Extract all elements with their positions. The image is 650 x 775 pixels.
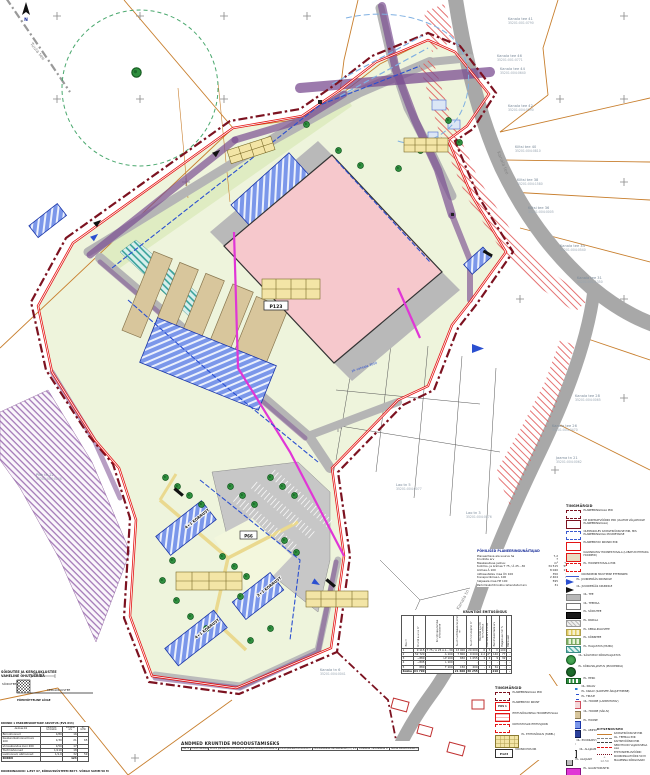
legend-item: KRUNDIPIIRI MUUTMISE ETTEPANEK bbox=[566, 574, 650, 578]
tri-black-swatch bbox=[566, 587, 574, 593]
legend-item-label: PLANEERITAV KRUNT bbox=[513, 702, 540, 705]
parking-table-block: KRUNDI 1 PARKIMISKOHTADE ARVUTUS (EVS 84… bbox=[1, 722, 89, 762]
section-right-label: KERGLIIKLUSTEE bbox=[47, 688, 70, 692]
legend-item: DP KONTAKTVÖÖNDI PIIR (ULATUB VÄLJAPOOLE… bbox=[566, 520, 650, 529]
data-table: Asutuse liikparkimis- normatiivkohtade a… bbox=[1, 726, 89, 762]
pos-label-p123: P123 bbox=[270, 304, 283, 310]
legend-item-label: PL. TRUUP bbox=[582, 696, 595, 699]
legend-item: OL. HOONE (LAMMUTATAV) bbox=[566, 701, 650, 709]
box-magenta-swatch bbox=[566, 768, 581, 775]
tree2-swatch bbox=[566, 667, 576, 677]
tree-swatch bbox=[566, 655, 576, 665]
parcel-label: Kanala tee 4135201:001:0790 bbox=[508, 17, 534, 25]
legend-item: OL. TEE bbox=[566, 594, 650, 601]
legend-item-label: PL. GAASITORUSTIK bbox=[584, 768, 610, 771]
parcel-label: Kanala tee 4235201:004:0690 bbox=[508, 104, 534, 112]
line-blue-swatch bbox=[566, 576, 579, 577]
hedge-swatch bbox=[566, 678, 581, 684]
table-column-header: Suurim brutopind m² bbox=[466, 615, 478, 648]
data-table: Pos nrKrundi suurus m²Krundi kasutamise … bbox=[401, 615, 512, 674]
legend-item-label: KOHUSTUSLIK EHITUSJOON bbox=[513, 724, 548, 727]
legend-item: 12.50MAAPINNA KÕRGUSARV bbox=[597, 760, 650, 763]
parcel-label: Kanala tee 4635201:001:0771 bbox=[497, 54, 523, 62]
legend-item-label: PL. PARKLA bbox=[584, 620, 599, 623]
parcel-label: Kanala tee 2635201:004:0470 bbox=[552, 424, 578, 432]
build-rights-title: KRUNTIDE EHITUSÕIGUS bbox=[401, 610, 569, 614]
legend-item: PLANEERINGUALA PIIR bbox=[495, 692, 575, 701]
box-darkred-swatch bbox=[495, 692, 510, 701]
parking-title: KRUNDI 1 PARKIMISKOHTADE ARVUTUS (EVS 84… bbox=[1, 722, 89, 725]
legend-item-label: OL. TEE bbox=[584, 594, 594, 597]
legend-item-label: KRUNDI POS NR bbox=[516, 749, 537, 752]
legend-item-label: PL. EHITUSÕIGUS (TABEL) bbox=[522, 734, 555, 737]
legend-item: KOHUSTUSLIK EHITUSJOON bbox=[495, 724, 575, 733]
legend-item-label: OL. SÄILITATAV KÕRGHALJASTUS bbox=[579, 655, 621, 658]
pos-label-p66: P66 bbox=[244, 534, 253, 539]
table-total-row: Kokku64 79021 60030 255210- bbox=[402, 669, 512, 673]
ln-reddash-swatch bbox=[597, 747, 612, 748]
legend-item: PL. EHITUSÕIGUS (TABEL) bbox=[495, 734, 575, 747]
legend-item-label: OL. TEEMAA bbox=[584, 603, 600, 606]
line-legend-title: KITSENDUSED bbox=[597, 727, 650, 731]
legend-item-label: PL. KÕNNITEE bbox=[584, 637, 602, 640]
legend-item-label: PLANEERINGUALA PIIR bbox=[513, 692, 542, 695]
legend-item: PLANEERITAV KRUNDI PIIR bbox=[566, 542, 650, 551]
section-dim: min 2,25 bbox=[33, 672, 45, 676]
legend-item-label: PL. KERGLIIKLUSTEE bbox=[584, 629, 610, 632]
legend-item: PL. HALJASTUS (MURU) bbox=[566, 646, 650, 653]
section-diagram: SÕIDUTEE min 2,25 KERGLIIKLUSTEE PÕHIMÕT… bbox=[1, 671, 111, 715]
data-table: Pos nrKrundi aadressKrundi planeeritud s… bbox=[181, 747, 419, 752]
table-column-header: Senise katastriüksuse nr bbox=[390, 747, 419, 751]
indicator-row: Parkimiskohti kokku lahendatud arv31 bbox=[477, 584, 567, 588]
legend-item: PL. KERGLIIKLUSTEE bbox=[566, 629, 650, 636]
legend-item: P123KRUNDI POS NR bbox=[495, 749, 575, 758]
legend-item-label: KAVANDATAV HOONESTUSALA (LUBATUD EHITADA… bbox=[584, 552, 650, 558]
table-column-header: Krundi planeeritud suurus m² bbox=[278, 747, 312, 751]
legend-item: PLANEERINGUALA PIIR bbox=[566, 510, 650, 519]
legend-item-label: PL. KRAAV (SADEVEE ÄRAJUHTIMINE) bbox=[582, 691, 630, 694]
legend-item-label: PL. JUURDEPÄÄS KRUNDILE bbox=[577, 579, 612, 582]
legend-item: POS 1PLANEERITAV KRUNT bbox=[495, 702, 575, 711]
box-red-tan-swatch bbox=[566, 553, 581, 562]
legend-item-label: PL. HOONESTUSALA PIIR bbox=[584, 563, 616, 566]
plan-indicators-block: PÕHILISED PLANEERINGUNÄITAJAD Planeerita… bbox=[477, 549, 567, 587]
legend-item: PL. HEKK bbox=[566, 678, 650, 684]
legend-title: TINGMÄRGID bbox=[566, 504, 650, 508]
legend-item: KAVANDATAV HOONESTUSALA (LUBATUD EHITADA… bbox=[566, 552, 650, 561]
table-column-header: Liidetakse / lahutatakse m² bbox=[358, 747, 390, 751]
legend-item: PL. JUURDEPÄÄS KRUNDILE bbox=[566, 579, 650, 585]
legend2-title: TINGMÄRGID bbox=[495, 686, 575, 690]
legend-item: PL. HOONESTUSALA PIIR bbox=[566, 563, 650, 572]
box-note-swatch bbox=[495, 735, 519, 748]
legend-item: PL. KÕNNITEE bbox=[566, 637, 650, 644]
legend-item: OL. HOONE (SÄILIV) bbox=[566, 711, 650, 719]
legend-item-label: PLANEERITAV KRUNDI PIIR bbox=[584, 542, 618, 545]
bar-black-swatch bbox=[566, 612, 581, 619]
legend-item-label: PLANEERINGUALA PIIR bbox=[584, 510, 613, 513]
formation-title: ANDMED KRUNTIDE MOODUSTAMISEKS bbox=[181, 741, 443, 746]
legend-item-label: OLEMASOLEV KATASTRIÜKSUSE PIIR, MIS PLAN… bbox=[584, 531, 650, 537]
legend-item: OL. SÄILITATAV KÕRGHALJASTUS bbox=[566, 655, 650, 665]
legend-item-label: DP KONTAKTVÖÖNDI PIIR (ULATUB VÄLJAPOOLE… bbox=[584, 520, 650, 526]
bar-gdot-swatch bbox=[566, 638, 581, 645]
legend-item-label: PL. HEKK bbox=[584, 678, 596, 681]
legend-item: OLEMASOLEV KATASTRIÜKSUSE PIIR, MIS PLAN… bbox=[566, 531, 650, 540]
section-left-label: SÕIDUTEE bbox=[2, 681, 16, 686]
table-total-row: KOKKU124 bbox=[2, 757, 89, 761]
section-block: SÕIDUTEE JA KERGLIIKLUSTEE VAHELINE OHUT… bbox=[1, 671, 113, 679]
legend-item-label: PL. HOONE bbox=[584, 720, 598, 723]
box-red-swatch bbox=[566, 542, 581, 551]
box-posnr-swatch: P123 bbox=[495, 749, 513, 758]
box-darkred2-swatch bbox=[566, 520, 581, 529]
footer-note: KOORDINAADID: L-EST 97, KÕRGUSSÜSTEEM BK… bbox=[1, 769, 311, 773]
indicators-title: PÕHILISED PLANEERINGUNÄITAJAD bbox=[477, 549, 567, 553]
parcel-label: Kanala tee 3435201:004:0540 bbox=[560, 244, 586, 252]
legend-secondary: TINGMÄRGID PLANEERINGUALA PIIRPOS 1PLANE… bbox=[495, 686, 575, 760]
parcel-label: Kanala tee 4435201:004:0640 bbox=[500, 67, 526, 75]
box-grey-sm-swatch bbox=[566, 759, 573, 766]
parcel-label: Kanala tee 2835201:004:0065 bbox=[575, 394, 601, 402]
north-label: N bbox=[24, 17, 28, 23]
box-red-swatch: POS 1 bbox=[495, 702, 510, 711]
legend-item-label: OL. HOONE (LAMMUTATAV) bbox=[584, 701, 619, 704]
legend-item-label: EHITUSÕIGUSEGA HOONESTUSALA bbox=[513, 713, 559, 716]
legend-item-label: PL. ALAJAAM bbox=[576, 759, 592, 762]
table-row: Kaubandushooned kuni 1001/302165 bbox=[2, 737, 89, 744]
legend-item-label: PL. KÕRGHALJASTUS (PUUDERIDA) bbox=[579, 666, 624, 669]
table-column-header: Suurim ehitisealune pind m² bbox=[454, 615, 466, 648]
legend-item-label: OL. JUURDEPÄÄS KRUNDILE bbox=[577, 586, 613, 589]
tri-blue-swatch bbox=[566, 579, 574, 585]
box-red-open-swatch bbox=[566, 563, 581, 572]
bar-grey-swatch bbox=[566, 594, 581, 601]
bar-ydot-swatch bbox=[566, 629, 581, 636]
legend-item: PL. GAASITORUSTIK bbox=[566, 768, 650, 775]
table-column-header: Haljastuse min % bbox=[499, 615, 506, 648]
legend-item-label: MAAPINNA KÕRGUSARV bbox=[614, 760, 645, 763]
legend-item: PL. SÕIDUTEE bbox=[566, 611, 650, 618]
bar-speck-swatch bbox=[566, 620, 581, 627]
legend-item-label: PL. SÕIDUTEE bbox=[584, 611, 602, 614]
legend-item: OL. TEEMAA bbox=[566, 603, 650, 610]
legend-item: EHITUSÕIGUSEGA HOONESTUSALA bbox=[495, 713, 575, 722]
legend-item: PL. PARKLA bbox=[566, 620, 650, 627]
build-rights-table: KRUNTIDE EHITUSÕIGUS Pos nrKrundi suurus… bbox=[401, 610, 569, 674]
table-column-header: Moodustatakse olemasolevast (m²) s.h. bbox=[313, 747, 358, 751]
glyph-swatch: 12.50 bbox=[597, 760, 612, 763]
parcel-label: Kanala tee 3135201:001:1350 bbox=[577, 276, 603, 284]
table-column-header: Pos nr bbox=[402, 615, 414, 648]
table-column-header: Pos nr bbox=[182, 747, 191, 751]
legend-item: PL. KÕRGHALJASTUS (PUUDERIDA) bbox=[566, 666, 650, 676]
detail-plan-sheet: P123 P66 N Kanala tee 4135201:001:0790Ka… bbox=[0, 0, 650, 775]
legend-lines: KITSENDUSED KATASTRIÜKSUSE PIIROL. TEEMA… bbox=[597, 727, 650, 765]
ln-orange-swatch bbox=[597, 734, 612, 735]
box-redstripe-swatch bbox=[495, 713, 510, 722]
table-column-header: Parkimiskohtade arv bbox=[491, 615, 499, 648]
box-blue-dash-swatch bbox=[566, 531, 581, 540]
table-column-header: Krundi aadress bbox=[190, 747, 209, 751]
table-column-header: Krundi kasutamise sihtotstarve bbox=[426, 615, 454, 648]
bar-white-swatch bbox=[566, 603, 581, 610]
table-column-header: Krundi planeeritud sihtotstarve ja katas… bbox=[209, 747, 278, 751]
legend-item-label: OL. ALAJAAM bbox=[580, 749, 597, 752]
box-darkred-swatch bbox=[566, 510, 581, 519]
legend-item-label: OL. KRAAV bbox=[582, 686, 596, 689]
table-column-header: Krundi suurus m² bbox=[413, 615, 425, 648]
legend-item: OL. JUURDEPÄÄS KRUNDILE bbox=[566, 586, 650, 592]
table-column-header: Märkused bbox=[507, 615, 512, 648]
section-note: PÕHIMÕTTELINE LÕIGE bbox=[17, 697, 51, 702]
bar-teal-swatch bbox=[566, 646, 581, 653]
legend-item-label: KRUNDIPIIRI MUUTMISE ETTEPANEK bbox=[582, 574, 628, 577]
box-red-open-swatch bbox=[495, 724, 510, 733]
legend-item: PL. KRAAV (SADEVEE ÄRAJUHTIMINE) bbox=[566, 691, 650, 695]
legend-item-label: PL. HALJASTUS (MURU) bbox=[584, 646, 614, 649]
ln-greydd-swatch bbox=[597, 738, 612, 739]
legend-item-label: OL. HOONE (SÄILIV) bbox=[584, 711, 610, 714]
ln-dash-swatch bbox=[597, 742, 612, 743]
